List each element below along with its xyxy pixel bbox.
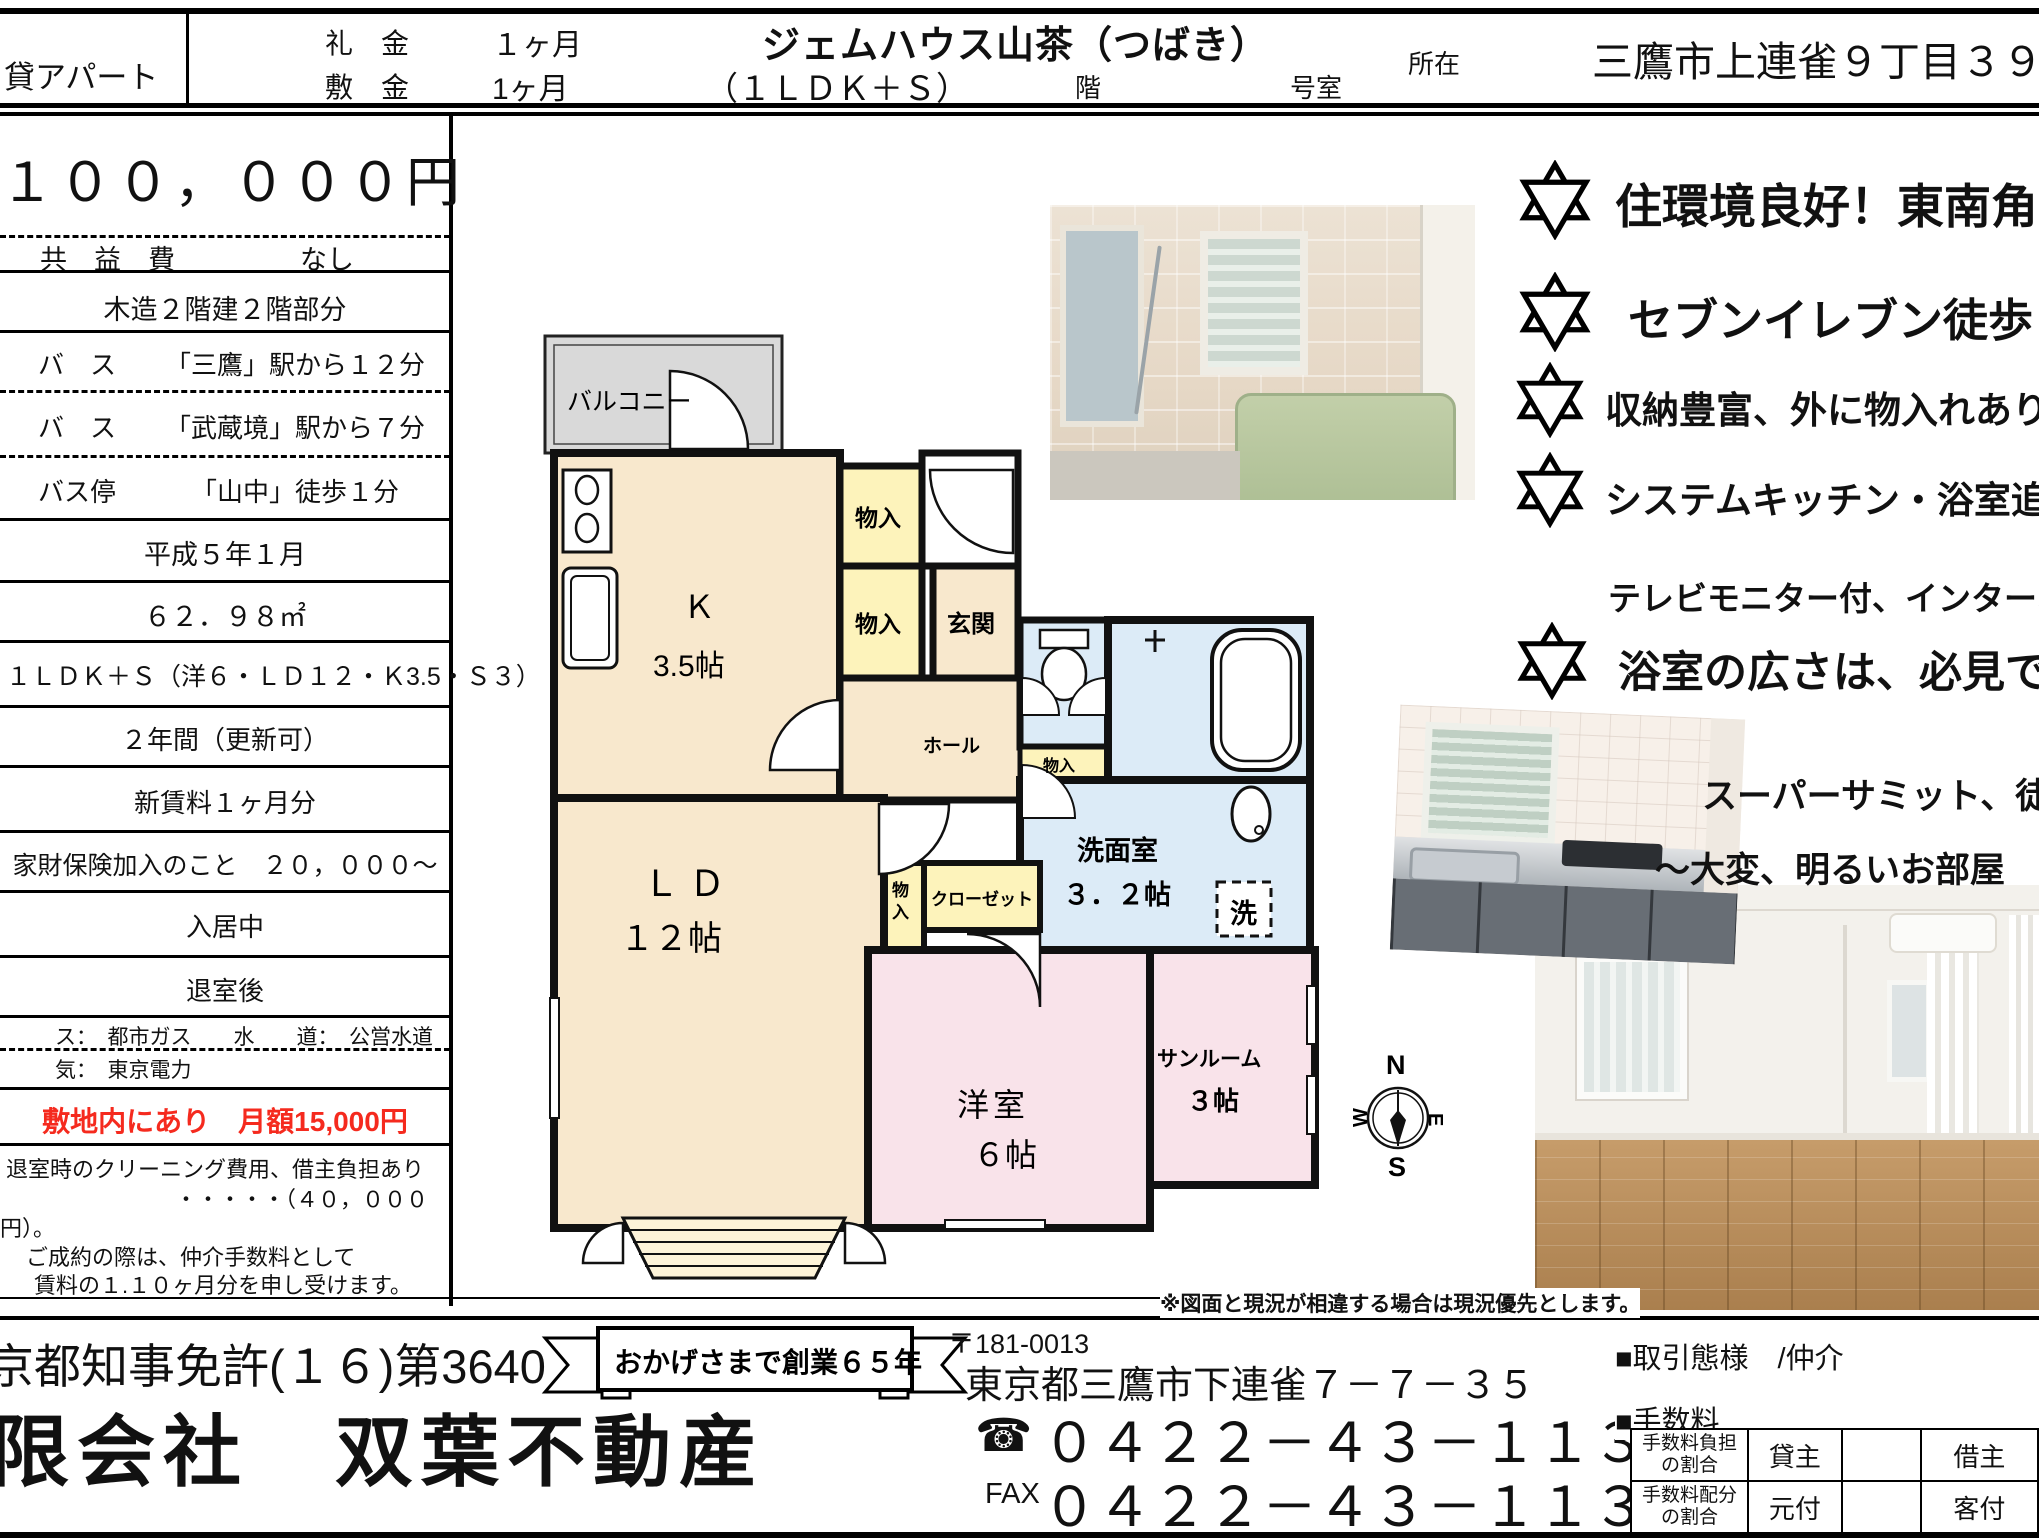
- compass-needle: [1390, 1110, 1406, 1146]
- air-conditioner: [1889, 913, 1997, 953]
- curtain: [1927, 945, 1979, 1135]
- room-label: ＬＤ: [643, 863, 735, 904]
- disclaimer: ※図面と現況が相違する場合は現況優先とします。: [1160, 1288, 1640, 1318]
- fee-cell: 元付: [1748, 1481, 1842, 1533]
- room-label: 3.5帖: [653, 650, 725, 683]
- fee-cell: の割合: [1661, 1507, 1718, 1528]
- compass: N W E S: [1348, 1050, 1448, 1180]
- wood-floor: [1535, 1135, 2039, 1310]
- highlight-text: 収納豊富、外に物入れあり（玄関: [1605, 380, 2039, 434]
- shikikin-label: 敷 金: [325, 66, 409, 106]
- access-value: 「三鷹」駅から１２分: [150, 345, 440, 382]
- star-icon: [1515, 362, 1585, 438]
- utilities-electric: 気： 東京電力: [55, 1054, 192, 1084]
- fee-cell: の割合: [1661, 1455, 1718, 1476]
- room-label: ３．２帖: [1063, 880, 1171, 910]
- star-icon: [1518, 272, 1592, 352]
- renewal-fee: 新賃料１ヶ月分: [0, 783, 450, 820]
- fee-cell: 借主: [1921, 1429, 2038, 1481]
- window-icon: [550, 998, 559, 1118]
- room-label: ホール: [923, 736, 980, 757]
- bathroom-floor: [1050, 451, 1240, 500]
- room-label: サンルーム: [1157, 1048, 1261, 1071]
- fee-cell: 貸主: [1748, 1429, 1842, 1481]
- move-in: 退室後: [0, 971, 450, 1008]
- room-label: 物入: [855, 505, 901, 531]
- room-label: 洋室: [957, 1087, 1029, 1123]
- note-line: 円）。: [0, 1211, 55, 1243]
- built-date: 平成５年１月: [0, 533, 450, 572]
- bathtub: [1235, 393, 1456, 500]
- highlight-text: スーパーサミット、徒歩: [1702, 768, 2039, 819]
- star-icon: [1516, 622, 1588, 700]
- window-icon: [1307, 986, 1316, 1044]
- occupancy-status: 入居中: [0, 907, 450, 944]
- area-value: ６２．９８㎡: [0, 595, 450, 634]
- deal-type: ■取引態様 /仲介: [1615, 1335, 1844, 1377]
- parking-info: 敷地内にあり 月額15,000円: [0, 1100, 450, 1140]
- room-label: 物: [892, 880, 909, 900]
- access-value: 「武蔵境」駅から７分: [150, 408, 440, 445]
- window-icon: [1307, 1076, 1316, 1134]
- fee-table: 手数料負担 の割合 貸主 借主 手数料配分 の割合 元付 客付: [1630, 1428, 2039, 1534]
- room-label: １２帖: [620, 920, 722, 958]
- access-value: 「山中」徒歩１分: [150, 472, 440, 509]
- room-label: 入: [892, 903, 909, 922]
- fee-cell: 手数料配分: [1642, 1485, 1737, 1506]
- highlight-text: 浴室の広さは、必見です: [1618, 638, 2039, 700]
- header-bottom-border-2: [0, 112, 2039, 116]
- small-window: [1887, 980, 1931, 1082]
- header-divider: [186, 14, 189, 104]
- structure-value: 木造２階建２階部分: [0, 288, 450, 327]
- fax-label: FAX: [985, 1478, 1040, 1511]
- bathroom-mirror: [1060, 225, 1144, 427]
- access-label: バ ス: [38, 345, 116, 382]
- insurance: 家財保険加入のこと ２０，０００〜: [0, 846, 450, 882]
- room-label: 号室: [1290, 68, 1342, 105]
- star-icon: [1515, 452, 1585, 528]
- room-label: Ｋ: [683, 589, 715, 625]
- fee-cell: 客付: [1921, 1481, 2038, 1533]
- note-line: 賃料の１.１０ヶ月分を申し受けます。: [34, 1268, 412, 1300]
- highlight-text: システムキッチン・浴室追焚機能: [1605, 470, 2039, 524]
- fee-cell: [1842, 1429, 1921, 1481]
- stairs: [583, 1218, 885, 1278]
- floor-label: 階: [1075, 68, 1101, 105]
- reikin-label: 礼 金: [325, 22, 409, 62]
- location-label: 所在: [1408, 44, 1460, 81]
- bathroom-window: [1200, 231, 1308, 375]
- license-number: 東京都知事免許(１６)第3640: [0, 1328, 546, 1397]
- access-label: バ ス: [38, 408, 116, 445]
- room-label: 物入: [1043, 756, 1075, 775]
- room-label: ３帖: [1187, 1086, 1239, 1116]
- room-label: バルコニー: [567, 388, 692, 416]
- doorway-frame: [1843, 925, 1847, 1135]
- kitchen-window: [1421, 722, 1560, 846]
- room-label: クローゼット: [931, 889, 1033, 909]
- reikin-value: １ヶ月: [492, 20, 582, 64]
- property-address: 三鷹市上連雀９丁目３９番１１: [1592, 28, 2039, 88]
- room-window: [1577, 955, 1687, 1099]
- bathroom-photo: [1050, 205, 1475, 500]
- room-label: 洗: [1230, 899, 1257, 929]
- ribbon-text: おかげさまで創業６５年: [614, 1346, 922, 1378]
- room-label: 玄関: [947, 610, 995, 638]
- note-line: 退室時のクリーニング費用、借主負担あり: [6, 1152, 424, 1184]
- compass-n: N: [1386, 1050, 1406, 1080]
- fee-cell: [1842, 1481, 1921, 1533]
- flyer-page: 貸アパート 礼 金 １ヶ月 敷 金 1ヶ月 ジェムハウス山茶（つばき） （１ＬＤ…: [0, 0, 2039, 1540]
- fee-cell: 手数料負担: [1642, 1433, 1737, 1454]
- room-label: 洗面室: [1077, 835, 1158, 866]
- note-line: ・・・・・（４０，０００: [175, 1182, 428, 1214]
- access-label: バス停: [38, 472, 116, 509]
- kitchen-photo: [1390, 705, 1745, 965]
- property-type: 貸アパート: [4, 52, 158, 97]
- rent-value: １００，０００円: [0, 138, 450, 217]
- star-icon: [1518, 160, 1592, 240]
- highlight-text: 〜大変、明るいお部屋: [1655, 842, 2005, 893]
- fax-number: ０４２２－４３－１１３３: [1042, 1462, 1702, 1540]
- highlight-text: 住環境良好！東南角部屋: [1615, 168, 2039, 237]
- window-icon: [945, 1220, 1045, 1229]
- kitchen-stove: [1562, 840, 1663, 870]
- contract-term: ２年間（更新可）: [0, 720, 450, 757]
- anniversary-ribbon: おかげさまで創業６５年: [540, 1320, 970, 1410]
- compass-e: E: [1424, 1113, 1446, 1126]
- baseboard: [1535, 1133, 2039, 1140]
- utilities-gas-water: ス： 都市ガス 水 道： 公営水道: [55, 1021, 433, 1051]
- phone-icon: ☎: [975, 1408, 1032, 1462]
- washbasin-icon: [1232, 787, 1270, 841]
- header-bottom-border-1: [0, 103, 2039, 108]
- compass-w: W: [1350, 1108, 1372, 1127]
- room-label: ６帖: [973, 1137, 1037, 1173]
- building-name: ジェムハウス山茶（つばき）: [762, 14, 1269, 69]
- stove-icon: [563, 470, 611, 552]
- compass-s: S: [1388, 1152, 1406, 1180]
- highlight-text: セブンイレブン徒歩１分: [1628, 284, 2039, 349]
- room-label: 物入: [855, 611, 901, 637]
- shikikin-value: 1ヶ月: [492, 64, 569, 108]
- highlight-text: テレビモニター付、インターホーン: [1608, 572, 2039, 620]
